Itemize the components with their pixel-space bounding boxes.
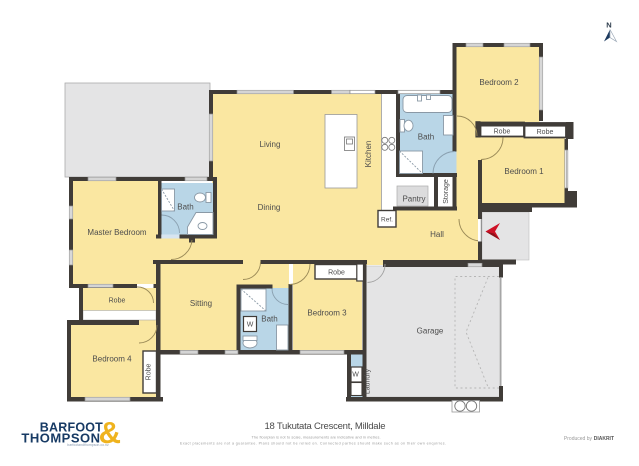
svg-text:Produced by: Produced by	[564, 436, 593, 442]
svg-text:Bedroom 1: Bedroom 1	[504, 167, 544, 176]
svg-text:Garage: Garage	[417, 327, 444, 336]
svg-text:W: W	[352, 372, 359, 379]
svg-text:barfootandthompson.co.nz: barfootandthompson.co.nz	[67, 443, 109, 447]
svg-text:Robe: Robe	[109, 298, 126, 305]
svg-text:Robe: Robe	[494, 129, 511, 136]
svg-text:Robe: Robe	[146, 364, 153, 381]
svg-text:DIAKRIT: DIAKRIT	[594, 436, 614, 442]
svg-text:Ref.: Ref.	[381, 217, 393, 224]
svg-text:Bedroom 2: Bedroom 2	[479, 78, 519, 87]
svg-text:Bath: Bath	[177, 203, 193, 212]
svg-text:N: N	[606, 21, 611, 30]
svg-text:Storage: Storage	[443, 179, 450, 204]
svg-text:Living: Living	[260, 140, 281, 149]
svg-text:Bath: Bath	[261, 315, 277, 324]
svg-text:18 Tukutata Crescent, Milldale: 18 Tukutata Crescent, Milldale	[265, 421, 386, 432]
svg-text:Exact placements are not a gua: Exact placements are not a guarantee. Pl…	[180, 442, 446, 446]
svg-text:Hall: Hall	[430, 230, 444, 239]
svg-text:Bath: Bath	[418, 133, 434, 142]
svg-text:Pantry: Pantry	[402, 195, 425, 204]
svg-text:Sitting: Sitting	[190, 299, 212, 308]
svg-text:The floorplan is not to scale,: The floorplan is not to scale, measureme…	[252, 436, 381, 440]
svg-text:Bedroom 4: Bedroom 4	[92, 355, 132, 364]
svg-text:Robe: Robe	[537, 129, 554, 136]
svg-text:Bedroom 3: Bedroom 3	[307, 309, 347, 318]
svg-text:Robe: Robe	[328, 270, 345, 277]
svg-text:Laundry: Laundry	[365, 368, 372, 394]
svg-text:Master Bedroom: Master Bedroom	[87, 228, 146, 237]
svg-text:Kitchen: Kitchen	[364, 141, 373, 168]
svg-text:W: W	[247, 322, 254, 329]
svg-text:Dining: Dining	[258, 203, 281, 212]
